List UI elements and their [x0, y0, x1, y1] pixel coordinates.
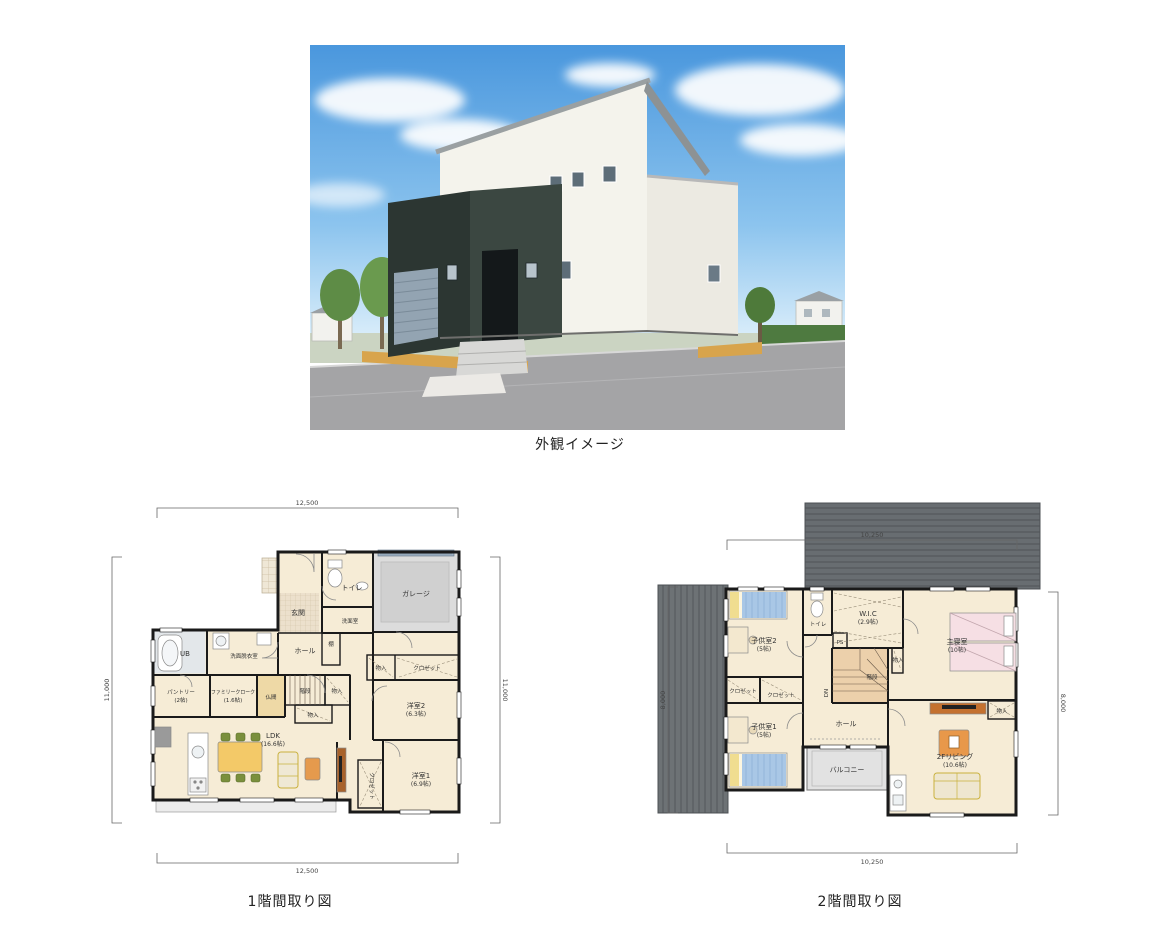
label-hall1: ホール: [295, 647, 316, 655]
floor1-dim-right: 11,000: [501, 679, 509, 702]
floor1-dim-left: 11,000: [103, 679, 111, 702]
floor1-dim-bottom: 12,500: [296, 867, 319, 875]
label-kids1-size: (5帖): [757, 731, 772, 739]
floor1-dim-top: 12,500: [296, 499, 319, 507]
stove: [190, 778, 206, 792]
label-toilet2: トイレ: [810, 622, 827, 628]
label-kids1: 子供室1: [751, 722, 776, 731]
label-dressing: 洗面脱衣室: [230, 652, 258, 660]
floor2-svg: 10,250 10,250 8,000 8,000: [650, 495, 1090, 895]
label-ldk: LDK: [266, 732, 280, 740]
kids1-desk: [728, 717, 748, 743]
laptop: [949, 736, 959, 748]
kids2-desk: [728, 627, 748, 653]
window-dark-front: [526, 263, 537, 278]
garage-shutter: [394, 268, 438, 345]
roof-left: [658, 585, 728, 813]
label-ps: PS: [837, 640, 844, 646]
washing-machine-drum: [216, 636, 226, 646]
label-pantry: パントリー: [167, 689, 195, 696]
label-kids2: 子供室2: [751, 636, 776, 645]
floor1-plan: 12,500 12,500 11,000 11,000: [100, 490, 520, 910]
fridge: [155, 727, 171, 747]
kids1-bed: [729, 753, 787, 787]
label-dn: DN: [824, 689, 830, 697]
label-room2: 洋室2: [407, 701, 425, 710]
exterior-render: [310, 45, 845, 430]
tv2: [942, 705, 976, 709]
label-closet-b: クロゼット: [368, 772, 376, 800]
label-closet-a: クロゼット: [413, 664, 441, 672]
label-room1-size: (6.9帖): [411, 780, 431, 788]
label-washroom: 洗面室: [342, 617, 359, 625]
toilet-bowl: [328, 569, 342, 587]
floor2-caption: 2階間取り図: [800, 891, 920, 911]
right-white-volume: [647, 176, 738, 335]
label-toilet1: トイレ: [342, 584, 363, 592]
entrance-recess: [482, 249, 518, 342]
vanity: [257, 633, 271, 645]
exterior-render-svg: [310, 45, 845, 430]
real-estate-plan-sheet: 外観イメージ 12,500 12,500 11,000 11,00: [0, 0, 1160, 952]
label-closet2-a: クロゼット: [729, 687, 757, 695]
label-storage2-a: 物入: [892, 656, 904, 664]
floor1-svg: 12,500 12,500 11,000 11,000: [100, 490, 520, 910]
label-master-size: (10帖): [948, 646, 966, 654]
toilet2-bowl: [811, 601, 823, 617]
bathtub-inner: [162, 640, 178, 666]
label-garage: ガレージ: [402, 589, 430, 598]
label-ub: UB: [180, 650, 190, 658]
tv: [339, 756, 342, 782]
window-dark-left: [447, 265, 457, 280]
label-wic: W.I.C: [859, 610, 877, 618]
label-storage-b: 物入: [307, 711, 319, 719]
label-pantry-size: (2帖): [174, 696, 187, 704]
label-wic-size: (2.9帖): [858, 618, 878, 626]
floor1-caption: 1階間取り図: [230, 891, 350, 911]
label-ldk-size: (16.6帖): [261, 740, 285, 748]
label-family-closet-size: (1.6帖): [224, 696, 243, 704]
label-butsuma: 仏間: [265, 694, 277, 701]
kids2-bed: [729, 591, 787, 619]
exterior-caption: 外観イメージ: [518, 434, 642, 454]
label-stairs2: 階段: [866, 673, 878, 681]
floor2-dim-top: 10,250: [861, 531, 884, 539]
label-room1: 洋室1: [412, 771, 430, 780]
dining-table: [218, 742, 262, 772]
floor2-dim-bottom: 10,250: [861, 858, 884, 866]
label-living: 2Fリビング: [937, 752, 973, 761]
side-table: [305, 758, 320, 780]
label-balcony: バルコニー: [830, 766, 865, 774]
label-storage-c: 物入: [375, 664, 387, 672]
label-room2-size: (6.3帖): [406, 710, 426, 718]
label-genkan: 玄関: [291, 608, 305, 617]
roof-top: [805, 503, 1040, 589]
window-right-volume: [708, 265, 720, 282]
label-living-size: (10.6帖): [943, 761, 967, 769]
floor2-dim-left: 8,000: [659, 691, 667, 710]
label-stairs1: 階段: [299, 687, 311, 695]
toilet2-tank: [811, 593, 823, 600]
label-hall2: ホール: [836, 720, 857, 728]
kitchen-sink: [192, 746, 204, 758]
floor2-plan: 10,250 10,250 8,000 8,000: [650, 495, 1090, 895]
label-family-closet: ファミリークローク: [211, 689, 255, 696]
sofa: [278, 752, 298, 788]
floor2-dim-right: 8,000: [1059, 694, 1067, 713]
label-closet2-b: クロゼット: [767, 691, 795, 699]
toilet-tank: [328, 560, 342, 568]
label-kids2-size: (5帖): [757, 645, 772, 653]
label-storage-a: 物入: [331, 687, 343, 695]
label-master: 主寝室: [947, 637, 968, 646]
label-shelf: 棚: [328, 640, 334, 648]
label-storage2-b: 物入: [996, 707, 1008, 715]
